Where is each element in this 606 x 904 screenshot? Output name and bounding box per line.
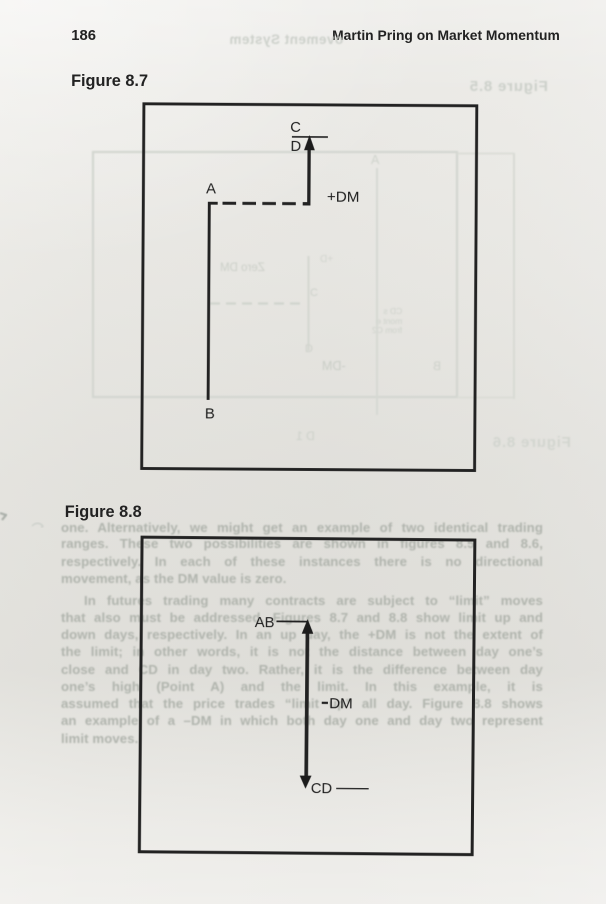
svg-text:CD: CD [311, 781, 333, 797]
svg-text:B: B [205, 406, 215, 423]
svg-text:D: D [290, 139, 301, 155]
svg-text:C: C [290, 120, 301, 136]
svg-text:DM: DM [329, 695, 353, 712]
svg-text:A: A [206, 181, 216, 197]
svg-text:AB: AB [255, 615, 275, 631]
svg-text:+DM: +DM [327, 189, 360, 206]
